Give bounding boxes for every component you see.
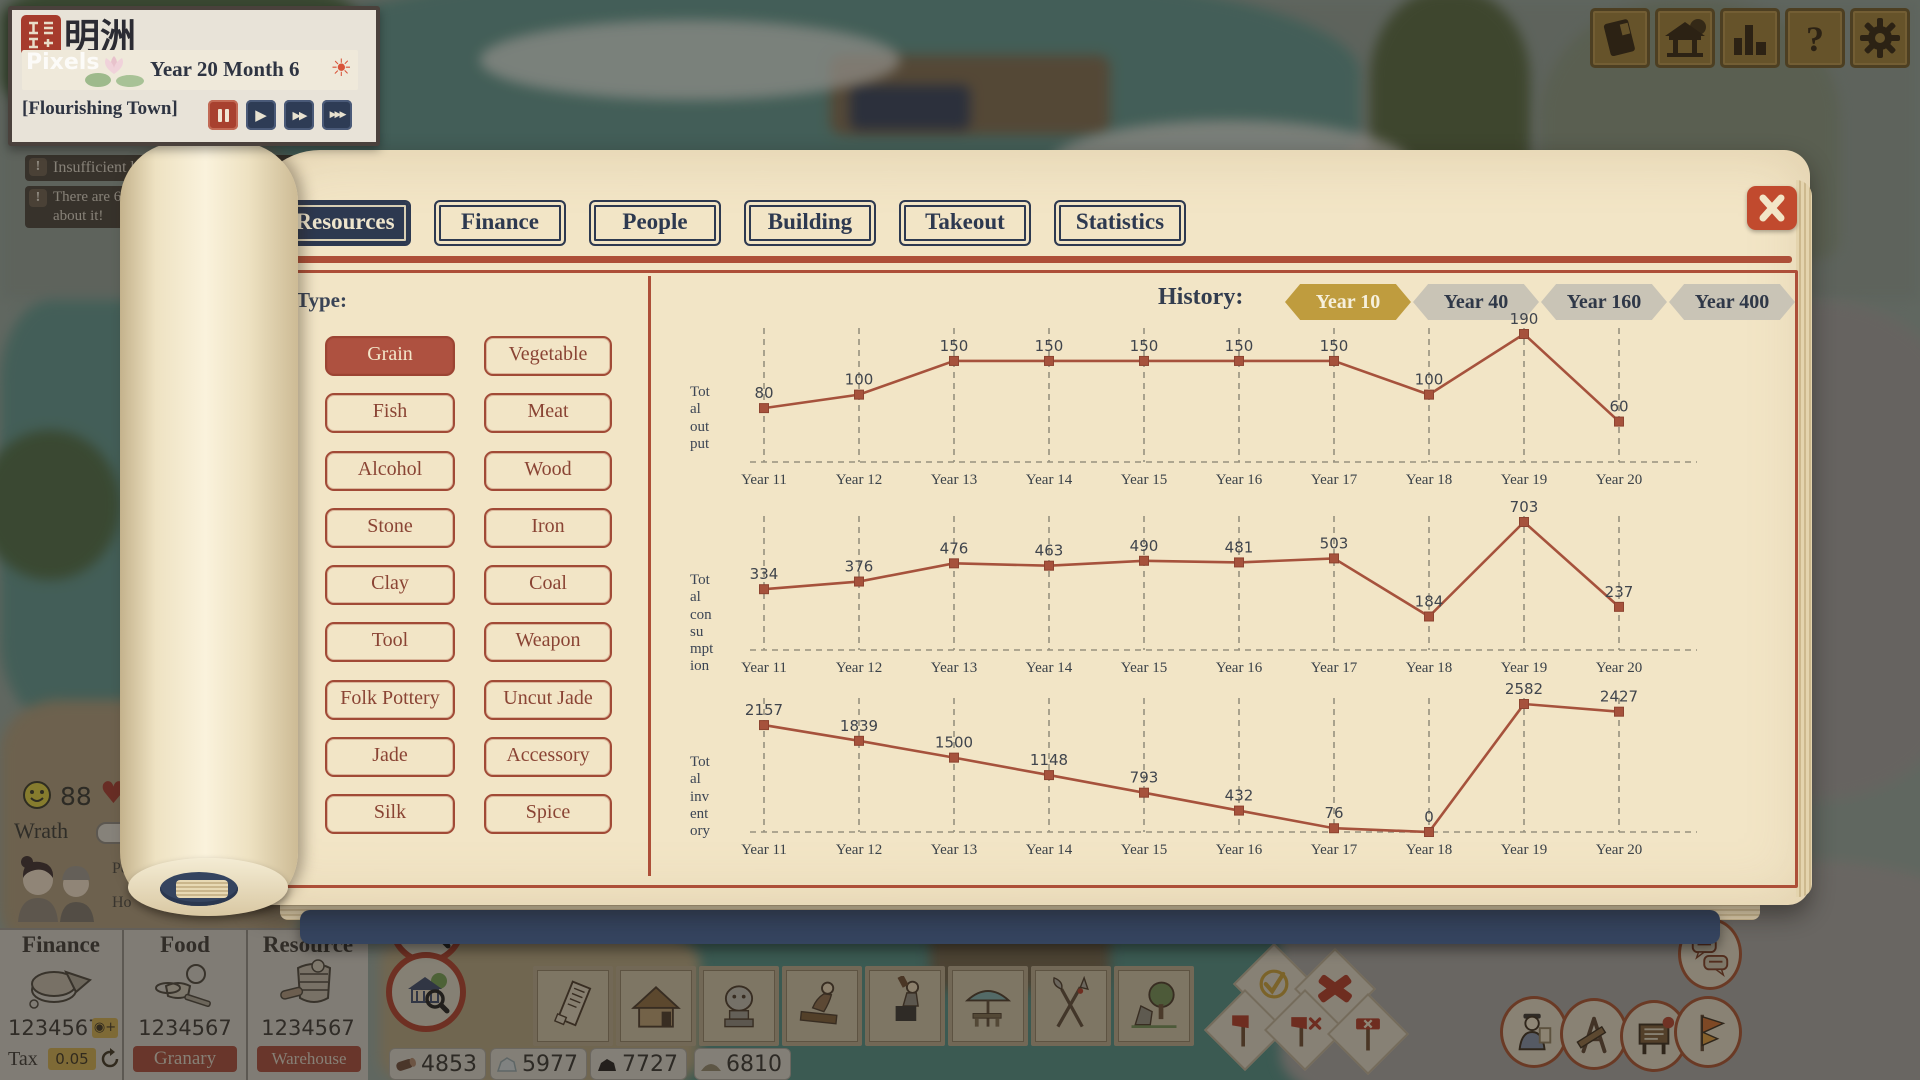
- svg-text:100: 100: [845, 371, 874, 389]
- svg-text:1839: 1839: [840, 717, 878, 735]
- svg-text:Year 16: Year 16: [1216, 472, 1263, 488]
- type-button-uncut-jade[interactable]: Uncut Jade: [484, 680, 612, 720]
- tab-statistics[interactable]: Statistics: [1054, 200, 1186, 246]
- svg-text:503: 503: [1320, 534, 1349, 552]
- svg-text:Year 14: Year 14: [1026, 472, 1073, 488]
- close-button[interactable]: [1747, 186, 1797, 230]
- svg-text:Year 18: Year 18: [1406, 660, 1452, 676]
- fast-forward-button[interactable]: ▶▶: [284, 100, 314, 130]
- svg-text:150: 150: [1035, 337, 1064, 355]
- type-button-alcohol[interactable]: Alcohol: [325, 451, 455, 491]
- svg-text:Year 15: Year 15: [1121, 842, 1167, 858]
- svg-text:Year 13: Year 13: [931, 660, 977, 676]
- svg-text:476: 476: [940, 539, 969, 557]
- history-button-year-160[interactable]: Year 160: [1541, 284, 1667, 320]
- svg-text:Year 11: Year 11: [741, 842, 787, 858]
- chart-total-inventory: TotalinventoryYear 11Year 12Year 13Year …: [686, 692, 1716, 880]
- watermark: Pixels: [26, 50, 99, 75]
- type-label: Type:: [296, 288, 347, 313]
- svg-text:463: 463: [1035, 542, 1064, 560]
- svg-text:376: 376: [845, 558, 874, 576]
- svg-text:76: 76: [1324, 804, 1343, 822]
- svg-text:432: 432: [1225, 787, 1254, 805]
- svg-text:2582: 2582: [1505, 680, 1543, 698]
- scroll-roll-pages: [176, 880, 228, 898]
- type-button-vegetable[interactable]: Vegetable: [484, 336, 612, 376]
- type-button-stone[interactable]: Stone: [325, 508, 455, 548]
- svg-text:2427: 2427: [1600, 688, 1638, 706]
- svg-text:Year 11: Year 11: [741, 472, 787, 488]
- svg-text:1500: 1500: [935, 734, 973, 752]
- play-button[interactable]: ▶: [246, 100, 276, 130]
- type-button-meat[interactable]: Meat: [484, 393, 612, 433]
- svg-text:2157: 2157: [745, 701, 783, 719]
- svg-text:703: 703: [1510, 498, 1539, 516]
- svg-text:Year 19: Year 19: [1501, 472, 1547, 488]
- type-button-iron[interactable]: Iron: [484, 508, 612, 548]
- svg-text:Year 18: Year 18: [1406, 472, 1452, 488]
- pause-button[interactable]: [208, 100, 238, 130]
- chart-total-consumption: TotalconsumptionYear 11Year 12Year 13Yea…: [686, 510, 1716, 698]
- svg-text:Year 17: Year 17: [1311, 472, 1358, 488]
- svg-text:Year 13: Year 13: [931, 472, 977, 488]
- chart-plot: Year 11Year 12Year 13Year 14Year 15Year …: [722, 322, 1712, 510]
- type-button-tool[interactable]: Tool: [325, 622, 455, 662]
- panel-top-rule: [258, 256, 1792, 263]
- svg-text:237: 237: [1605, 583, 1634, 601]
- tab-building[interactable]: Building: [744, 200, 876, 246]
- svg-text:Year 13: Year 13: [931, 842, 977, 858]
- history-button-year-10[interactable]: Year 10: [1285, 284, 1411, 320]
- svg-text:150: 150: [1225, 337, 1254, 355]
- close-icon: [1757, 194, 1787, 222]
- svg-text:Year 12: Year 12: [836, 472, 882, 488]
- type-button-folk-pottery[interactable]: Folk Pottery: [325, 680, 455, 720]
- type-button-silk[interactable]: Silk: [325, 794, 455, 834]
- svg-text:Year 18: Year 18: [1406, 842, 1452, 858]
- chart-total-output: TotaloutputYear 11Year 12Year 13Year 14Y…: [686, 322, 1716, 510]
- svg-text:Year 12: Year 12: [836, 660, 882, 676]
- svg-text:Year 17: Year 17: [1311, 660, 1358, 676]
- svg-text:Year 20: Year 20: [1596, 842, 1642, 858]
- panel-divider: [648, 276, 651, 876]
- type-button-grain[interactable]: Grain: [325, 336, 455, 376]
- svg-text:Year 19: Year 19: [1501, 660, 1547, 676]
- svg-text:793: 793: [1130, 769, 1159, 787]
- svg-text:334: 334: [750, 565, 779, 583]
- svg-text:80: 80: [754, 384, 773, 402]
- tab-resources[interactable]: Resources: [279, 200, 411, 246]
- svg-text:1148: 1148: [1030, 751, 1068, 769]
- tab-takeout[interactable]: Takeout: [899, 200, 1031, 246]
- svg-text:Year 20: Year 20: [1596, 472, 1642, 488]
- scroll-roll: [120, 142, 298, 912]
- type-button-accessory[interactable]: Accessory: [484, 737, 612, 777]
- svg-text:150: 150: [1320, 337, 1349, 355]
- svg-text:Year 11: Year 11: [741, 660, 787, 676]
- town-title: [Flourishing Town]: [22, 98, 178, 120]
- tab-finance[interactable]: Finance: [434, 200, 566, 246]
- date-text: Year 20 Month 6: [150, 57, 300, 82]
- town-hud: 明洲 Pixels Year 20 Month 6 ☀ [Flourishing…: [8, 6, 380, 146]
- type-button-fish[interactable]: Fish: [325, 393, 455, 433]
- svg-text:Year 15: Year 15: [1121, 472, 1167, 488]
- svg-text:190: 190: [1510, 310, 1539, 328]
- tab-people[interactable]: People: [589, 200, 721, 246]
- svg-text:Year 20: Year 20: [1596, 660, 1642, 676]
- type-button-weapon[interactable]: Weapon: [484, 622, 612, 662]
- type-button-coal[interactable]: Coal: [484, 565, 612, 605]
- fastest-forward-button[interactable]: ▶▶▶: [322, 100, 352, 130]
- svg-text:Year 16: Year 16: [1216, 660, 1263, 676]
- svg-text:490: 490: [1130, 537, 1159, 555]
- svg-text:Year 12: Year 12: [836, 842, 882, 858]
- game-screen: ? ! Insufficient ho ccept more people ! …: [0, 0, 1920, 1080]
- svg-text:184: 184: [1415, 592, 1444, 610]
- svg-text:Year 15: Year 15: [1121, 660, 1167, 676]
- svg-text:60: 60: [1609, 398, 1628, 416]
- season-sun-icon: ☀: [330, 54, 352, 82]
- chart-plot: Year 11Year 12Year 13Year 14Year 15Year …: [722, 692, 1712, 880]
- svg-text:Year 19: Year 19: [1501, 842, 1547, 858]
- type-button-spice[interactable]: Spice: [484, 794, 612, 834]
- type-button-wood[interactable]: Wood: [484, 451, 612, 491]
- svg-text:100: 100: [1415, 371, 1444, 389]
- chart-plot: Year 11Year 12Year 13Year 14Year 15Year …: [722, 510, 1712, 698]
- type-button-jade[interactable]: Jade: [325, 737, 455, 777]
- svg-text:150: 150: [940, 337, 969, 355]
- svg-text:0: 0: [1424, 808, 1434, 826]
- type-button-clay[interactable]: Clay: [325, 565, 455, 605]
- history-button-year-400[interactable]: Year 400: [1669, 284, 1795, 320]
- svg-text:Year 17: Year 17: [1311, 842, 1358, 858]
- svg-text:481: 481: [1225, 538, 1254, 556]
- svg-text:Year 14: Year 14: [1026, 842, 1073, 858]
- history-label: History:: [1158, 284, 1243, 311]
- svg-text:150: 150: [1130, 337, 1159, 355]
- svg-text:Year 16: Year 16: [1216, 842, 1263, 858]
- svg-text:Year 14: Year 14: [1026, 660, 1073, 676]
